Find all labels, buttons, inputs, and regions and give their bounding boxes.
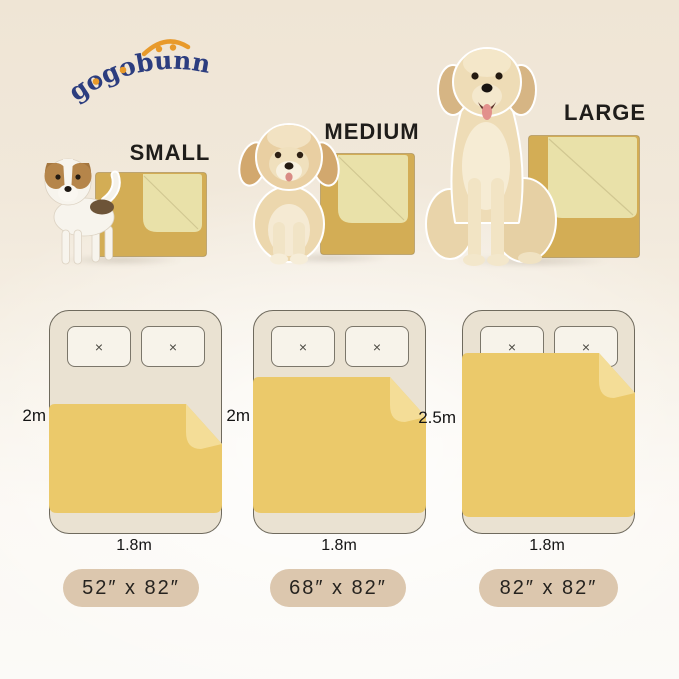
pillow-cross-icon: × [95,340,103,354]
large-dog-image [418,26,558,272]
blanket-overlay-large [462,353,635,517]
bed-diagram-large: × × [462,310,635,534]
bed-width-label-small: 1.8m [94,537,174,555]
size-badge-small: 52″ x 82″ [63,569,199,607]
infographic-root: gogobunny SMALL MEDIUM [0,0,679,679]
pillow: × [67,326,131,367]
bed-length-label-medium: 2m [200,406,250,426]
pillow-cross-icon: × [373,340,381,354]
pillow-cross-icon: × [508,340,516,354]
blanket-overlay-small [49,404,222,513]
size-badge-medium: 68″ x 82″ [270,569,406,607]
pillow: × [271,326,335,367]
medium-dog-image [234,110,344,266]
size-label-large: LARGE [545,100,665,126]
pillow: × [141,326,205,367]
bed-length-label-large: 2.5m [406,408,456,428]
pillow-cross-icon: × [299,340,307,354]
logo-o-dot-icon [120,67,127,74]
pillow-cross-icon: × [582,340,590,354]
logo-o-dot-icon [93,78,100,85]
bed-width-label-large: 1.8m [507,537,587,555]
blanket-overlay-medium [253,377,426,513]
brand-logo: gogobunny [58,36,223,121]
bed-diagram-small: × × [49,310,222,534]
bed-diagram-medium: × × [253,310,426,534]
size-badge-large: 82″ x 82″ [479,569,618,607]
small-dog-image [26,146,126,270]
pillow-cross-icon: × [169,340,177,354]
bed-length-label-small: 2m [0,406,46,426]
size-label-small: SMALL [110,140,230,166]
bed-width-label-medium: 1.8m [299,537,379,555]
pillow: × [345,326,409,367]
